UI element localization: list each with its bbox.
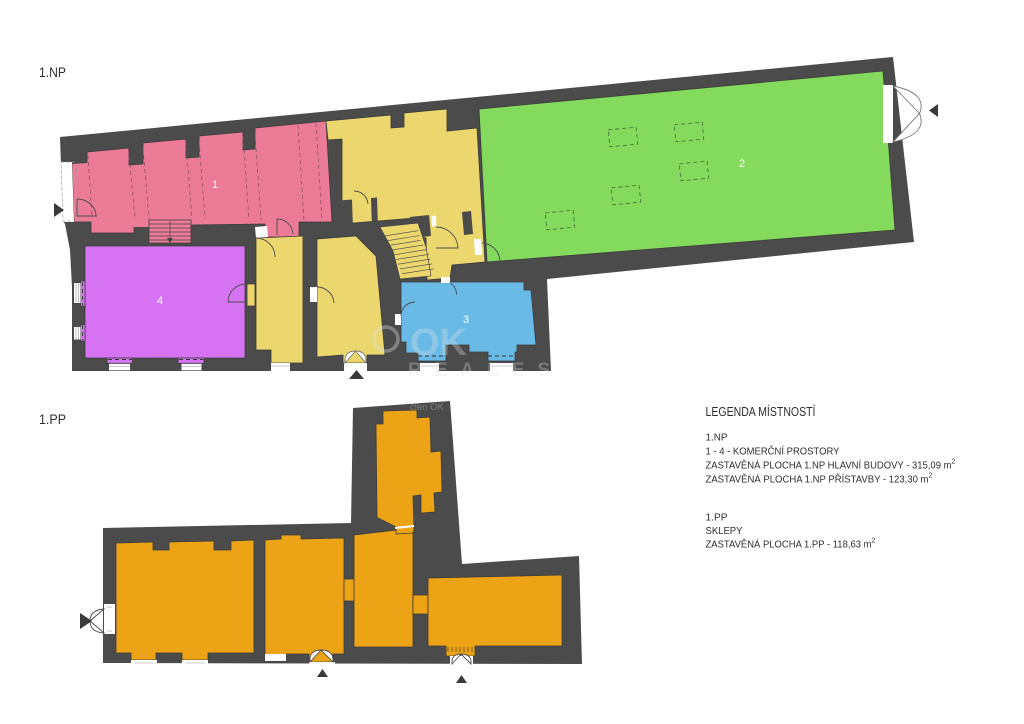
svg-text:LEGENDA MÍSTNOSTÍ: LEGENDA MÍSTNOSTÍ <box>706 404 816 419</box>
svg-text:1.PP: 1.PP <box>39 411 66 427</box>
svg-text:ZASTAVĚNÁ PLOCHA 1.PP - 118,63: ZASTAVĚNÁ PLOCHA 1.PP - 118,63 m <box>706 538 872 551</box>
svg-text:SKLEPY: SKLEPY <box>706 526 743 537</box>
svg-text:1.NP: 1.NP <box>706 433 728 444</box>
svg-text:2: 2 <box>872 538 876 545</box>
svg-text:REALES: REALES <box>408 360 563 381</box>
svg-text:ZASTAVĚNÁ PLOCHA 1.NP HLAVNÍ B: ZASTAVĚNÁ PLOCHA 1.NP HLAVNÍ BUDOVY - 31… <box>706 459 952 472</box>
svg-text:1 - 4 - KOMERČNÍ PROSTORY: 1 - 4 - KOMERČNÍ PROSTORY <box>706 445 840 458</box>
svg-text:OK: OK <box>410 322 468 364</box>
svg-text:člen OK: člen OK <box>410 402 444 413</box>
svg-text:2: 2 <box>739 158 745 170</box>
svg-text:1.NP: 1.NP <box>39 64 66 80</box>
svg-text:1: 1 <box>212 179 218 191</box>
svg-text:2: 2 <box>952 459 956 466</box>
svg-text:1.PP: 1.PP <box>706 513 728 524</box>
svg-text:ZASTAVĚNÁ PLOCHA 1.NP PŘÍSTAVB: ZASTAVĚNÁ PLOCHA 1.NP PŘÍSTAVBY - 123,30… <box>706 473 929 486</box>
svg-text:4: 4 <box>157 295 163 307</box>
svg-text:2: 2 <box>929 473 933 480</box>
